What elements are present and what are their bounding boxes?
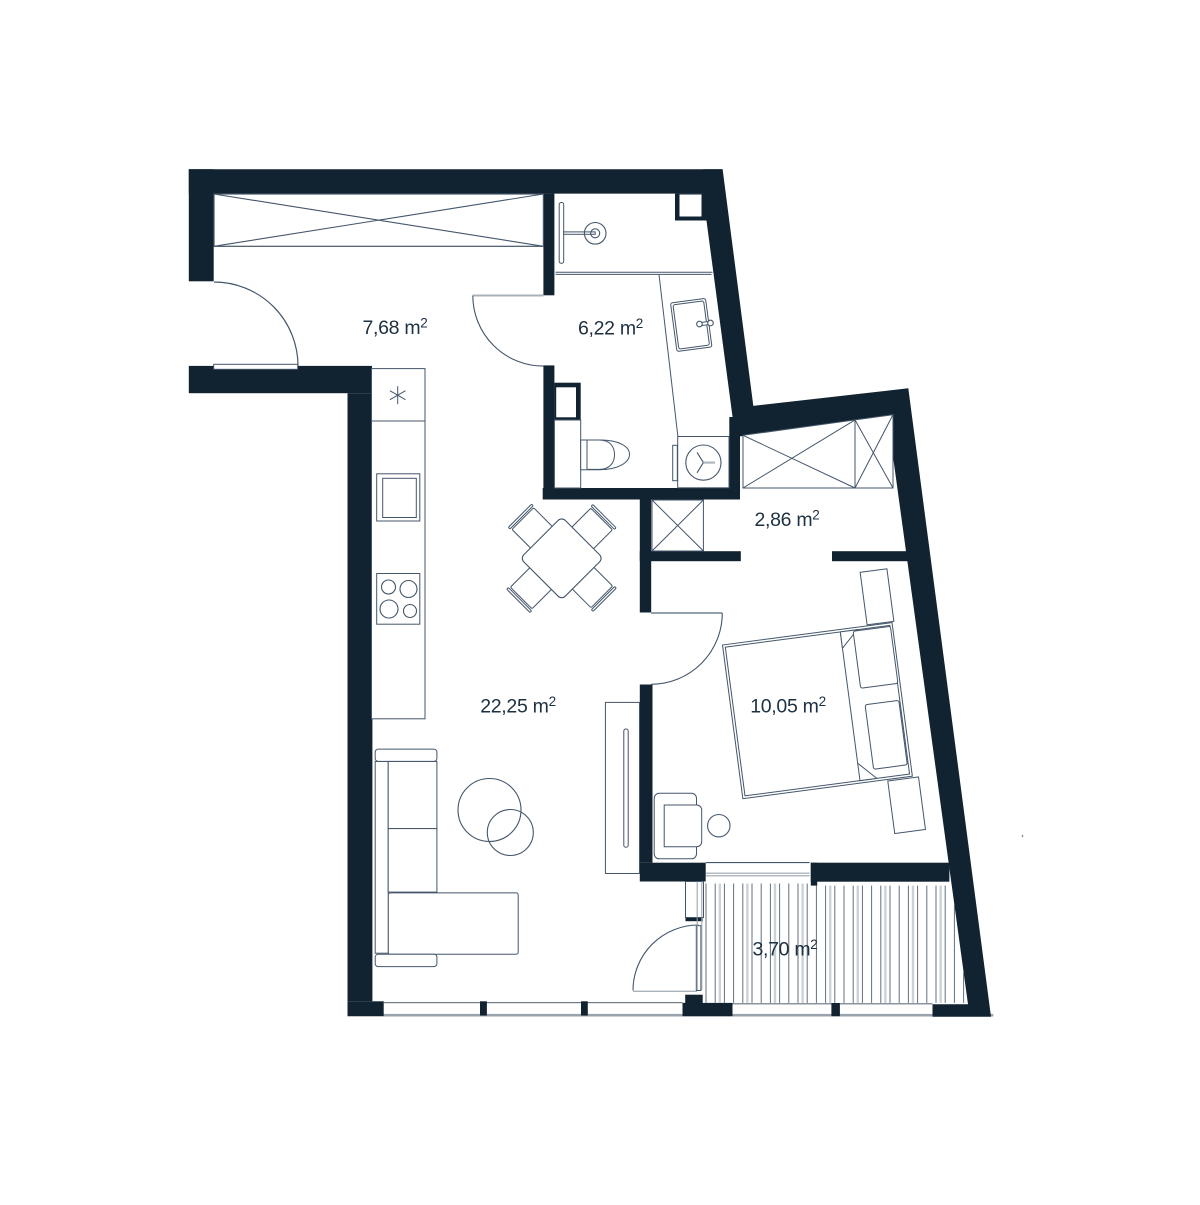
svg-text:3,70 m2: 3,70 m2 (752, 937, 817, 961)
svg-text:6,22 m2: 6,22 m2 (578, 316, 643, 340)
svg-text:22,25 m2: 22,25 m2 (480, 694, 556, 718)
svg-text:2,86 m2: 2,86 m2 (754, 508, 819, 532)
svg-text:7,68 m2: 7,68 m2 (362, 316, 427, 340)
svg-text:10,05 m2: 10,05 m2 (750, 694, 826, 718)
